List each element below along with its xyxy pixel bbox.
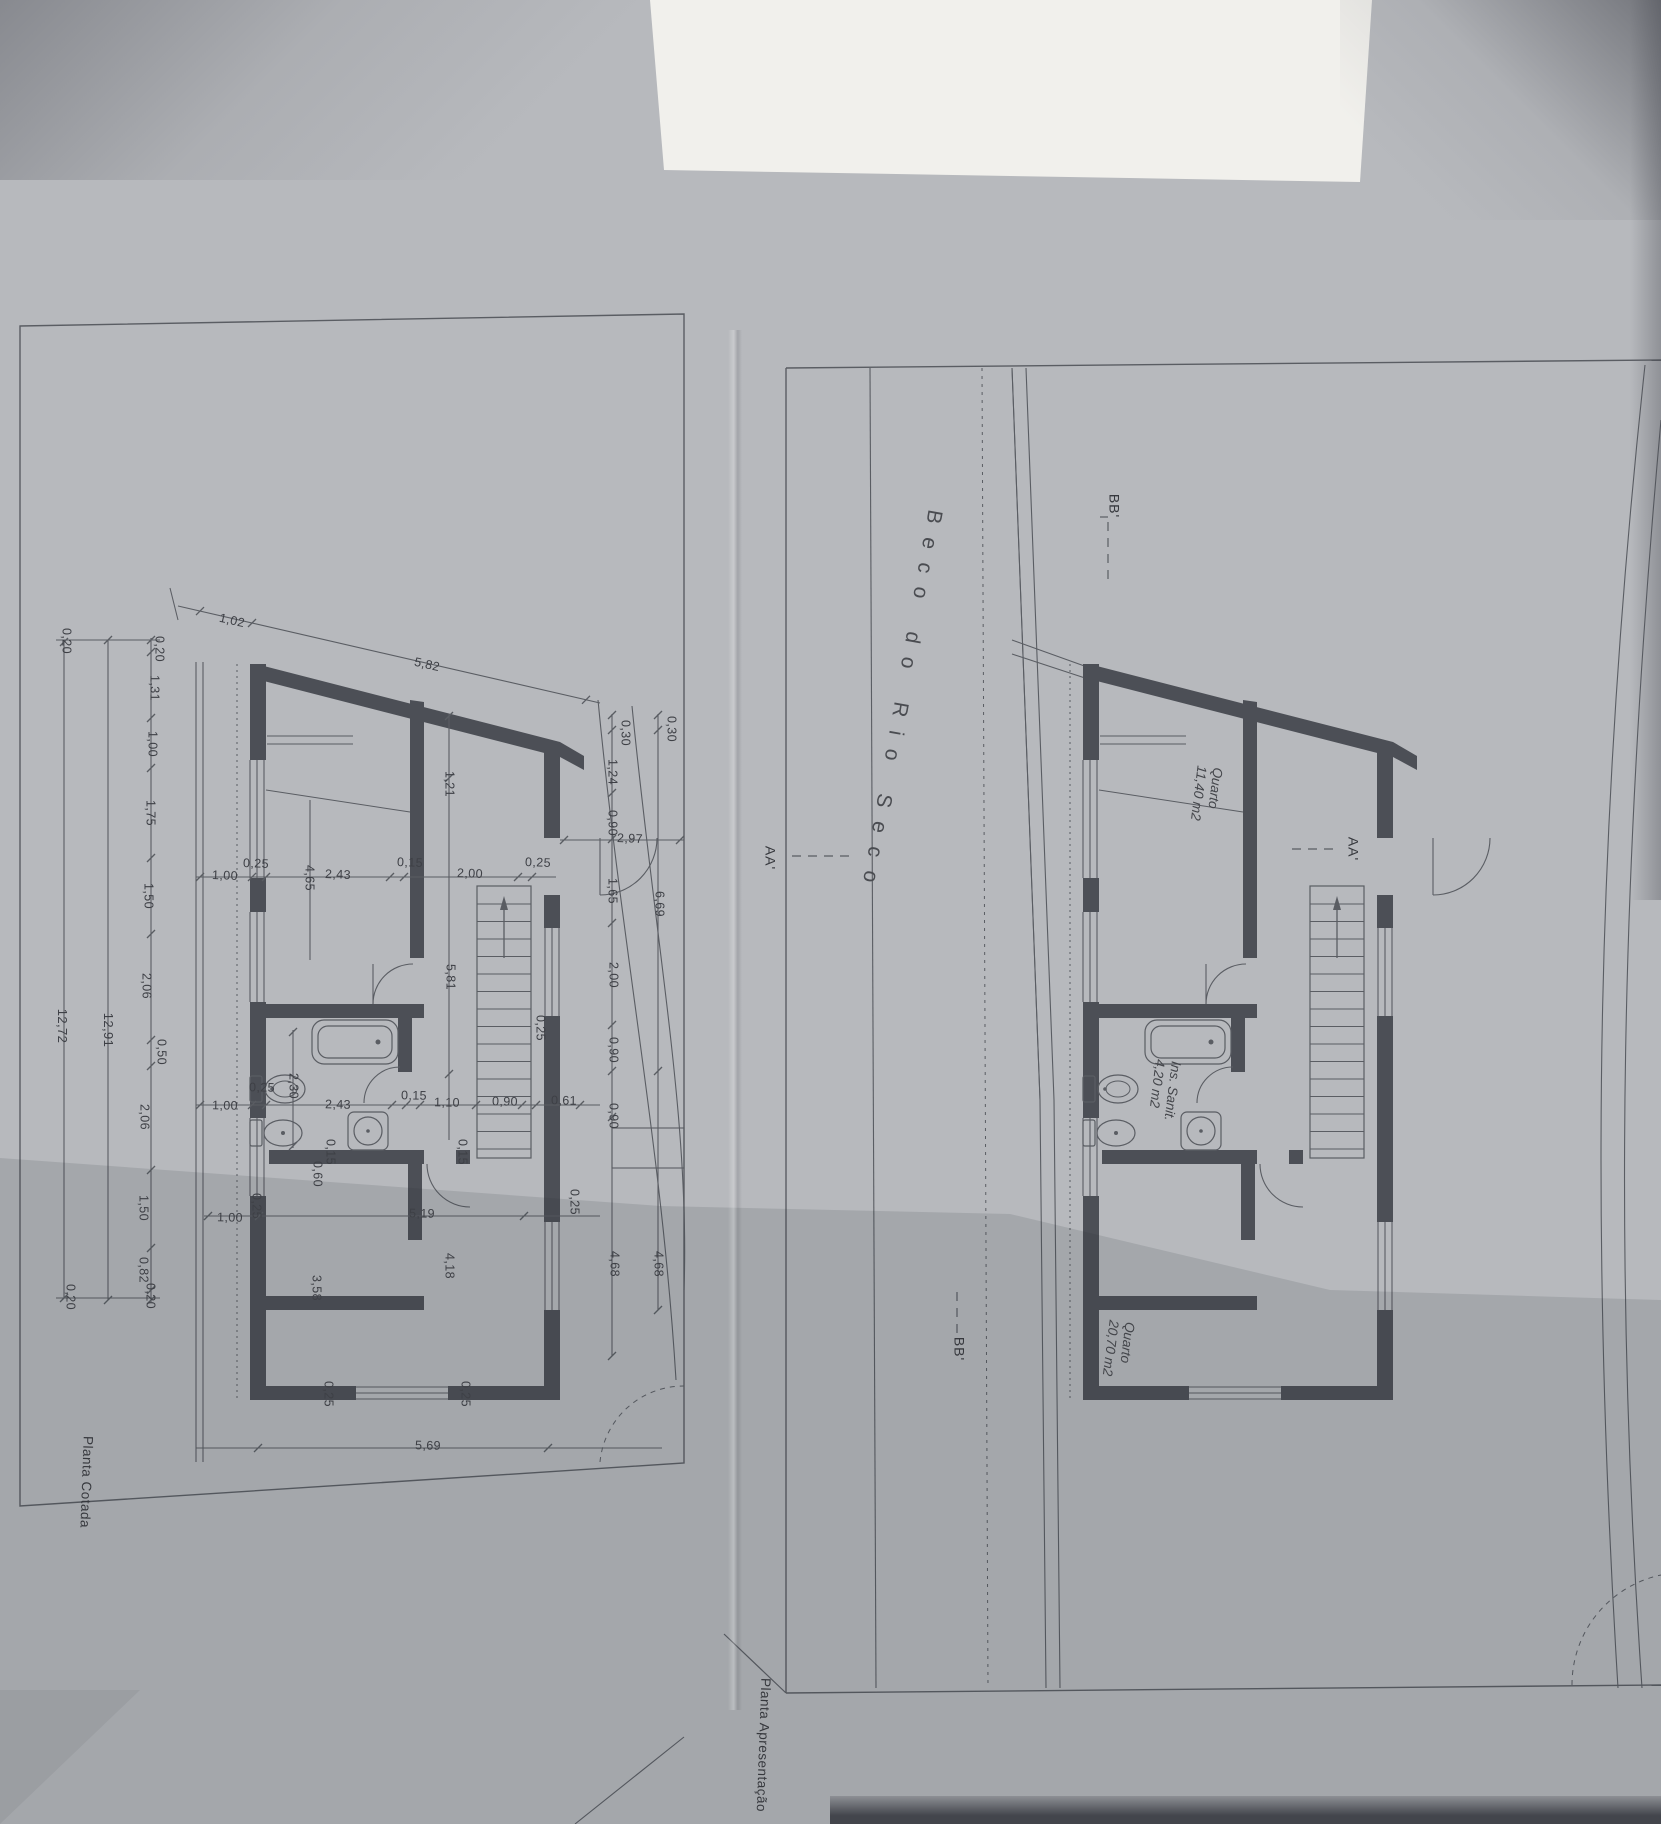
dimension-label: 2,43	[325, 867, 351, 883]
section-marker-label: AA'	[762, 846, 779, 870]
dimension-label: 0,25	[243, 856, 269, 872]
dimension-label: 1,00	[212, 1098, 238, 1113]
dimension-label: 1,10	[434, 1095, 460, 1110]
dimension-label: 1,00	[217, 1210, 243, 1225]
dimension-label: 0,25	[249, 1193, 264, 1219]
dimension-label: 0,20	[143, 1283, 158, 1309]
dimension-label: 5,69	[415, 1438, 441, 1453]
dimension-label: 1,50	[141, 883, 156, 909]
dimension-label: 12,72	[54, 1009, 70, 1044]
scanned-floor-plan-photo: Beco do Rio Seco Planta Cotada Planta Ap…	[0, 0, 1661, 1824]
dimension-label: 12,91	[100, 1013, 116, 1048]
dimension-label: 0,90	[606, 1103, 621, 1129]
section-marker-label: AA'	[1345, 837, 1362, 861]
dimension-label: 4,68	[651, 1251, 666, 1277]
dimension-label: 0,15	[323, 1139, 338, 1165]
dimension-label: 1,75	[143, 800, 158, 826]
dimension-label: 0,25	[533, 1015, 548, 1041]
dimension-label: 2,43	[325, 1097, 351, 1112]
dimension-label: 0,25	[458, 1381, 473, 1407]
bathtub	[1145, 1020, 1231, 1064]
dimension-label: 2,00	[457, 866, 483, 882]
dimension-label: 1,31	[147, 675, 162, 701]
bathtub	[312, 1020, 398, 1064]
dimension-label: 0,90	[492, 1094, 518, 1109]
dimension-label: 0,25	[525, 855, 551, 871]
dimension-label: 0,30	[618, 720, 633, 746]
dimension-label: 0,15	[401, 1088, 427, 1103]
floor-plan-linework	[0, 0, 1661, 1824]
dimension-label: 5,19	[409, 1206, 435, 1221]
washbasin	[1181, 1112, 1221, 1150]
dimension-label: 0,30	[664, 716, 679, 742]
dimension-label: 4,18	[442, 1253, 457, 1279]
staircase	[1310, 886, 1364, 1158]
dimension-label: 0,90	[606, 1037, 621, 1063]
dimension-label: 4,65	[302, 865, 317, 891]
washbasin	[348, 1112, 388, 1150]
dimension-label: 1,00	[212, 868, 238, 884]
room-label: Quarto 11,40 m2	[1187, 765, 1226, 824]
dimension-label: 0,50	[154, 1039, 169, 1065]
dimension-label: 0,60	[310, 1161, 325, 1187]
dimension-label: 0,61	[551, 1093, 577, 1108]
dimension-label: 0,25	[567, 1189, 582, 1215]
planta-apresentacao-drawing	[1070, 664, 1490, 1403]
staircase	[477, 886, 531, 1158]
dimension-label: 5,81	[443, 964, 458, 990]
dimension-label: 0,20	[59, 628, 74, 654]
dimension-label: 1,00	[145, 731, 160, 757]
dimension-label: 2,30	[286, 1073, 301, 1099]
section-marker-label: BB'	[1106, 494, 1123, 518]
dimension-label: 6,69	[652, 891, 667, 917]
section-marker-label: BB'	[951, 1337, 968, 1361]
dimension-label: 0,20	[152, 636, 167, 662]
dimension-label: 1,24	[605, 759, 620, 785]
dimension-label: 1,21	[442, 771, 457, 797]
dimension-label: 0,25	[321, 1381, 336, 1407]
dimension-label: 3,58	[309, 1275, 324, 1301]
dimension-label: 1,50	[136, 1195, 151, 1221]
dimension-label: 0,25	[249, 1080, 275, 1095]
dimension-label: 1,65	[605, 878, 620, 904]
dimension-label: 0,90	[605, 810, 620, 836]
dimension-label: 2,00	[606, 962, 621, 988]
dimension-label: 0,82	[136, 1257, 151, 1283]
dimension-label: 0,15	[455, 1139, 470, 1165]
dimension-label: 0,15	[397, 855, 423, 871]
dimension-label: 0,20	[63, 1284, 78, 1310]
dimension-label: 2,06	[137, 1104, 152, 1130]
dimension-label: 4,68	[607, 1251, 622, 1277]
caption-planta-cotada: Planta Cotada	[76, 1436, 95, 1529]
dimension-label: 2,97	[617, 831, 643, 847]
room-label: Quarto 20,70 m2	[1099, 1319, 1138, 1379]
dimension-label: 2,06	[139, 973, 154, 999]
